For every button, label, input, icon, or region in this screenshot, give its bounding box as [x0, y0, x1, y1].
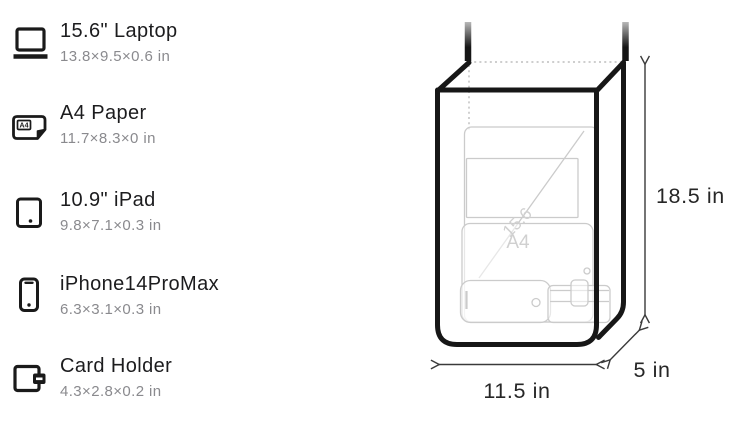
depth-arrow [610, 330, 640, 360]
bag-dimension-diagram: 15.6 A4 18.5 in 11.5 in 5 in [0, 0, 750, 426]
depth-dimension-label: 5 in [633, 358, 670, 382]
ghost-card-holder-clip [571, 280, 588, 306]
ghost-paper-label: A4 [506, 232, 530, 253]
bag-straps [468, 22, 626, 61]
height-dimension-label: 18.5 in [656, 184, 725, 208]
width-dimension-label: 11.5 in [483, 379, 550, 403]
ghost-iphone [461, 281, 551, 323]
bag-top-right-edge [597, 63, 624, 92]
bag-capacity-infographic: 15.6" Laptop 13.8×9.5×0.6 in A4 A4 Paper… [0, 0, 750, 426]
bag-hidden-edges [469, 62, 624, 130]
ghost-items: 15.6 A4 [461, 127, 611, 323]
bag-top-left-edge [438, 63, 470, 92]
